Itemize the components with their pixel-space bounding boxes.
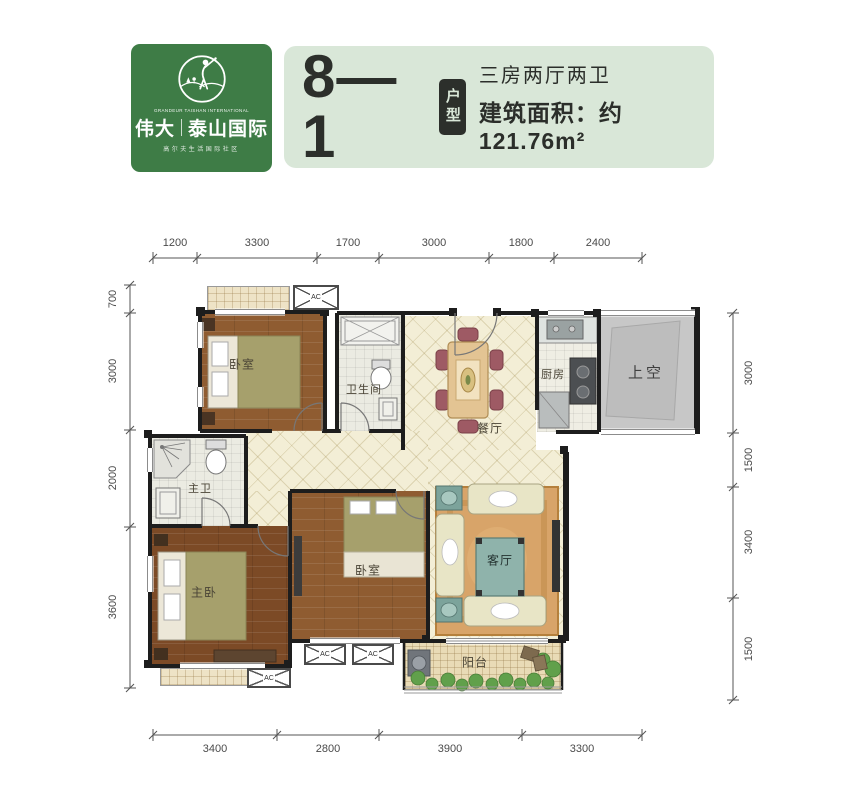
label-void: 上空 [628,362,664,383]
dim-left-3: 2000 [107,466,119,490]
label-master-bath: 主卫 [188,480,212,496]
dim-bottom-3: 3900 [438,743,462,755]
layout-type: 三房两厅两卫 [479,59,714,88]
ac-unit-top: AC [293,285,339,310]
floor-bathroom [337,313,403,431]
label-balcony: 阳台 [462,654,488,671]
dim-right-1: 3000 [743,361,755,385]
dim-left-4: 3600 [107,595,119,619]
dim-top-4: 3000 [422,237,446,249]
label-dining: 餐厅 [477,420,503,437]
dim-top-5: 1800 [509,237,533,249]
dim-top-3: 1700 [336,237,360,249]
label-kitchen: 厨房 [541,366,565,382]
label-bathroom: 卫生间 [346,381,382,397]
label-bedroom-middle: 卧室 [355,562,381,579]
unit-type-badge: 户型 [439,79,466,135]
floor-living [428,450,566,641]
dim-bottom-2: 2800 [316,743,340,755]
floor-corridor [246,431,428,491]
label-bedroom-top: 卧室 [229,356,255,373]
floor-master-bedroom [150,526,290,666]
brand-primary: 伟大 [135,114,175,141]
dim-left-1: 700 [107,290,119,308]
ac-unit-label: AC [263,675,275,682]
ac-unit-bottom-1: AC [304,644,346,665]
ac-unit-bottom-3: AC [247,668,291,688]
label-living: 客厅 [487,552,513,569]
brand-logo: GRANDEUR TAISHAN INTERNATIONAL 伟大 泰山国际 高… [131,44,272,172]
ac-unit-label: AC [310,294,322,301]
title-banner: 8—1 户型 三房两厅两卫 建筑面积：约121.76m² [284,46,714,168]
dim-left-2: 3000 [107,359,119,383]
logo-divider [181,119,182,136]
floor-hall [246,491,290,526]
area-text: 建筑面积：约121.76m² [479,94,714,155]
ac-unit-label: AC [367,651,379,658]
logo-english: GRANDEUR TAISHAN INTERNATIONAL [154,108,249,113]
golfer-icon [174,51,230,107]
dim-right-2: 1500 [743,448,755,472]
ac-unit-bottom-2: AC [352,644,394,665]
logo-tagline: 高尔夫生活国际社区 [163,144,240,153]
dim-bottom-4: 3300 [570,743,594,755]
dim-bottom-1: 3400 [203,743,227,755]
dim-top-1: 1200 [163,237,187,249]
brand-secondary: 泰山国际 [188,114,268,141]
floor-bedroom-top [200,312,325,431]
dim-right-3: 3400 [743,530,755,554]
unit-number: 8—1 [302,47,424,167]
label-master-bedroom: 主卧 [191,584,217,601]
dim-right-4: 1500 [743,637,755,661]
dim-top-2: 3300 [245,237,269,249]
brand-name: 伟大 泰山国际 [135,114,268,141]
floorplan-page: GRANDEUR TAISHAN INTERNATIONAL 伟大 泰山国际 高… [0,0,850,801]
ac-unit-label: AC [319,651,331,658]
dim-top-6: 2400 [586,237,610,249]
planter-top [207,286,290,311]
unit-description: 三房两厅两卫 建筑面积：约121.76m² [479,59,714,155]
